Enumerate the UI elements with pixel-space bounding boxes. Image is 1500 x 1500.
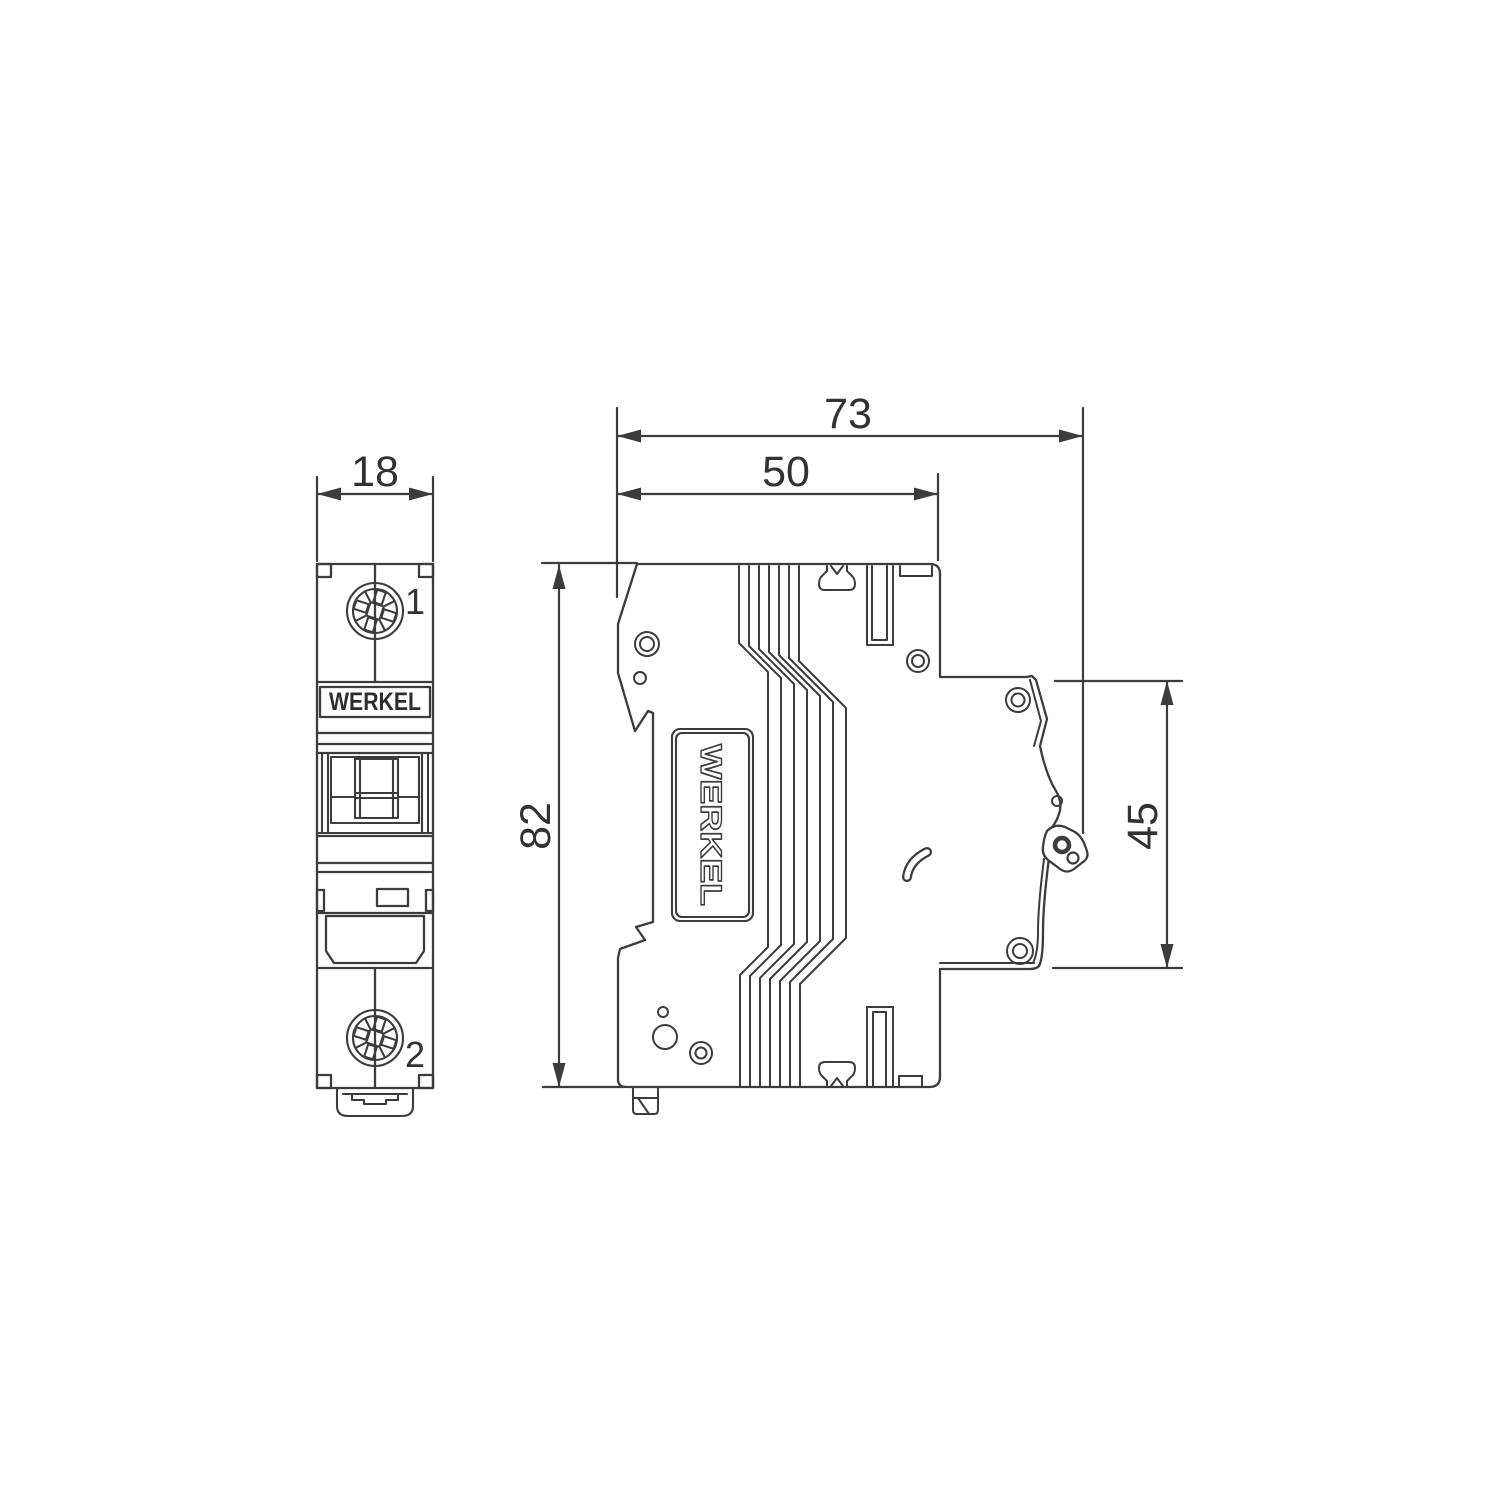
- rivet-bottom-left-inner: [696, 1048, 707, 1059]
- dim-label-73: 73: [824, 390, 872, 438]
- rivet-top-mid-outer: [907, 650, 929, 672]
- arrow-up-icon: [553, 565, 566, 589]
- arrow-down-icon: [553, 1063, 566, 1087]
- rivet-bottom-right-inner: [1013, 944, 1027, 958]
- arrow-up-icon: [1161, 681, 1174, 705]
- arrow-right-icon: [409, 488, 433, 501]
- rivet-top-left-outer: [635, 632, 659, 656]
- top-corner-rect: [900, 566, 932, 576]
- front-tab-bottom-left: [317, 1075, 331, 1088]
- arrow-left-icon: [317, 488, 341, 501]
- pin-hole-top-left: [634, 672, 646, 684]
- top-dovetail: [819, 566, 855, 590]
- bottom-dovetail: [819, 1062, 855, 1086]
- front-side-tab-left: [317, 890, 324, 911]
- arrow-left-icon: [617, 488, 641, 501]
- dim-label-45: 45: [1119, 802, 1167, 850]
- top-slot-inner: [872, 566, 887, 640]
- din-clip-side: [633, 1087, 658, 1114]
- pin-hole-bottom-left: [658, 1007, 668, 1017]
- drawing-canvas: 1 2 WERKEL: [0, 0, 1500, 1500]
- rivet-bottom-right-outer: [1007, 938, 1033, 964]
- dimensional-drawing: 1 2 WERKEL: [0, 0, 1500, 1500]
- front-lower-panel: [326, 916, 424, 963]
- din-clip-front: [337, 1088, 413, 1116]
- rating-window: [377, 889, 408, 906]
- front-side-tab-right: [426, 890, 433, 911]
- front-view: 1 2 WERKEL: [317, 564, 433, 1116]
- dim-label-18: 18: [351, 448, 399, 496]
- hole-bottom-left: [653, 1025, 677, 1049]
- arrow-down-icon: [1161, 944, 1174, 968]
- front-tab-bottom-right: [419, 1075, 433, 1088]
- top-dovetail-notch: [831, 566, 843, 574]
- dim-label-82: 82: [512, 802, 560, 850]
- dim-mount-height: 45: [1053, 681, 1182, 968]
- rivet-bottom-left-outer: [690, 1042, 712, 1064]
- side-view: WERKEL: [618, 564, 1088, 1114]
- bottom-dovetail-notch: [831, 1078, 843, 1086]
- front-brand-logo: WERKEL: [329, 688, 421, 716]
- dim-front-width: 18: [317, 448, 433, 561]
- rivet-top-mid-inner: [912, 655, 924, 667]
- housing-ridges: [739, 566, 846, 1086]
- terminal-1-label: 1: [405, 581, 425, 622]
- bottom-corner-rect: [899, 1076, 922, 1086]
- toggle-handle: [355, 759, 398, 818]
- front-tab-top-left: [317, 564, 331, 577]
- arrow-left-icon: [617, 430, 641, 443]
- bottom-slot-outer: [867, 1007, 893, 1086]
- rivet-top-left-inner: [640, 637, 654, 651]
- rivet-top-right-inner: [1012, 694, 1025, 707]
- rivet-top-right-outer: [1006, 688, 1030, 712]
- arrow-right-icon: [914, 488, 938, 501]
- dim-body-depth: 50: [617, 448, 938, 560]
- bottom-slot-inner: [873, 1012, 886, 1086]
- top-slot-outer: [867, 566, 893, 645]
- side-brand-label: WERKEL: [694, 744, 727, 906]
- front-tab-top-right: [419, 564, 433, 577]
- toggle-switch: [317, 753, 433, 833]
- terminal-2-label: 2: [405, 1034, 425, 1075]
- arrow-right-icon: [1059, 430, 1083, 443]
- dim-label-50: 50: [762, 448, 810, 496]
